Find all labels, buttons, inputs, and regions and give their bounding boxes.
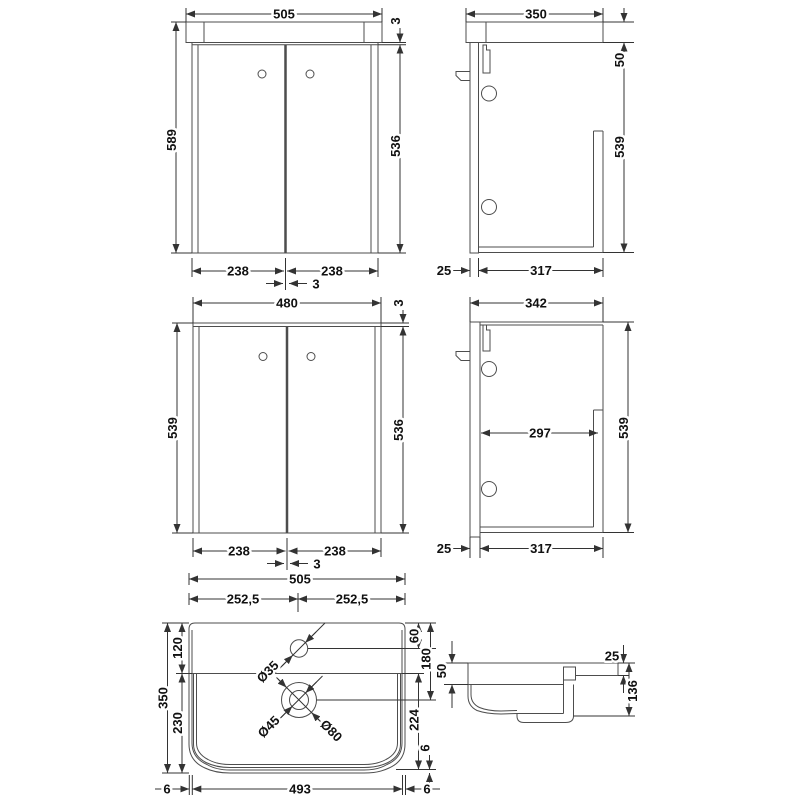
dim-bowl-inner-depth: 224 <box>407 708 422 730</box>
dim-overflow-diameter: Ø80 <box>317 717 345 745</box>
hinge-bottom <box>482 200 497 215</box>
dim-depth: 350 <box>525 7 547 22</box>
cabinet-front <box>193 323 381 533</box>
dim-basin-height: 50 <box>612 53 627 67</box>
dim-overall-width: 505 <box>273 7 295 22</box>
dimension-lines <box>172 297 409 570</box>
dim-height: 539 <box>616 417 631 439</box>
dim-overall-height: 136 <box>625 680 640 702</box>
dim-right-half: 252,5 <box>336 592 369 607</box>
carcass-side-view: 342 297 539 25 317 <box>437 296 634 559</box>
dim-door-setback: 25 <box>437 263 451 278</box>
dim-waste-diameter: Ø45 <box>255 713 283 741</box>
dim-door-setback: 25 <box>437 541 451 556</box>
fixing-clip <box>456 352 470 361</box>
dim-left-door-width: 238 <box>227 264 249 279</box>
dim-cabinet-height: 539 <box>612 136 627 158</box>
dim-right-door-width: 238 <box>324 544 346 559</box>
dim-right-door-width: 238 <box>321 264 343 279</box>
wall-bracket <box>483 45 490 73</box>
dim-door-gap: 3 <box>313 557 320 572</box>
dim-width: 505 <box>289 572 311 587</box>
waste-trap <box>517 714 574 723</box>
dim-body-depth: 317 <box>530 263 552 278</box>
dim-body-depth: 317 <box>530 541 552 556</box>
cabinet-side <box>456 43 603 254</box>
basin-worktop <box>186 22 382 43</box>
dim-door-height: 536 <box>388 135 403 157</box>
dim-top-gap: 3 <box>391 299 406 306</box>
basin-plan-view: 505 252,5 252,5 350 120 230 60 180 224 6… <box>155 572 440 797</box>
wall-bracket <box>483 325 490 351</box>
left-door-handle-hole <box>259 353 267 361</box>
carcass-front-view: 480 3 539 536 238 238 3 <box>165 296 409 572</box>
dim-depth: 350 <box>156 687 171 709</box>
dim-door-height: 536 <box>391 419 406 441</box>
side-view-with-basin: 350 50 539 25 317 <box>437 7 634 279</box>
hinge-bottom <box>482 482 497 497</box>
dim-left-rim: 6 <box>163 782 170 797</box>
dim-basin-door-gap: 3 <box>388 17 403 24</box>
dim-right-rim: 6 <box>423 782 430 797</box>
dim-depth: 342 <box>525 296 547 311</box>
cabinet-front <box>192 43 378 254</box>
right-door-handle-hole <box>307 353 315 361</box>
dim-width: 480 <box>276 296 298 311</box>
vanity-unit-drawing: 505 3 589 536 238 238 3 <box>0 0 800 800</box>
bowl-inner-contour <box>471 685 517 712</box>
dim-back-depth: 120 <box>170 637 185 659</box>
dim-left-half: 252,5 <box>227 592 260 607</box>
technical-drawing-page: 505 3 589 536 238 238 3 <box>0 0 800 800</box>
hinge-top <box>482 86 497 101</box>
dim-bottom-width: 493 <box>289 782 311 797</box>
dim-tap-hole-diameter: Ø35 <box>254 658 282 686</box>
dim-internal-depth: 297 <box>529 426 551 441</box>
dim-door-gap: 3 <box>312 277 319 292</box>
fixing-clip <box>456 72 470 81</box>
dim-bowl-depth: 230 <box>170 712 185 734</box>
front-view-with-basin: 505 3 589 536 238 238 3 <box>164 7 406 292</box>
dimension-lines <box>452 8 634 277</box>
right-door-handle-hole <box>306 70 314 78</box>
left-door-handle-hole <box>258 70 266 78</box>
dim-waste-centre-offset: 180 <box>419 648 434 670</box>
dim-front-height: 50 <box>434 664 449 678</box>
hinge-top <box>482 362 497 377</box>
fixing-slot <box>564 667 576 680</box>
dim-front-rim: 6 <box>418 744 433 751</box>
dim-left-door-width: 238 <box>228 544 250 559</box>
dim-tap-centre-offset: 60 <box>407 629 422 643</box>
basin-profile-outline <box>468 663 618 723</box>
dim-rear-ledge-thickness: 25 <box>605 649 619 664</box>
bowl-outer-contour <box>468 685 517 715</box>
basin-worktop-side <box>466 22 603 43</box>
dim-overall-height: 589 <box>164 129 179 151</box>
dim-height: 539 <box>165 417 180 439</box>
basin-profile-view: 50 25 136 <box>434 641 640 723</box>
